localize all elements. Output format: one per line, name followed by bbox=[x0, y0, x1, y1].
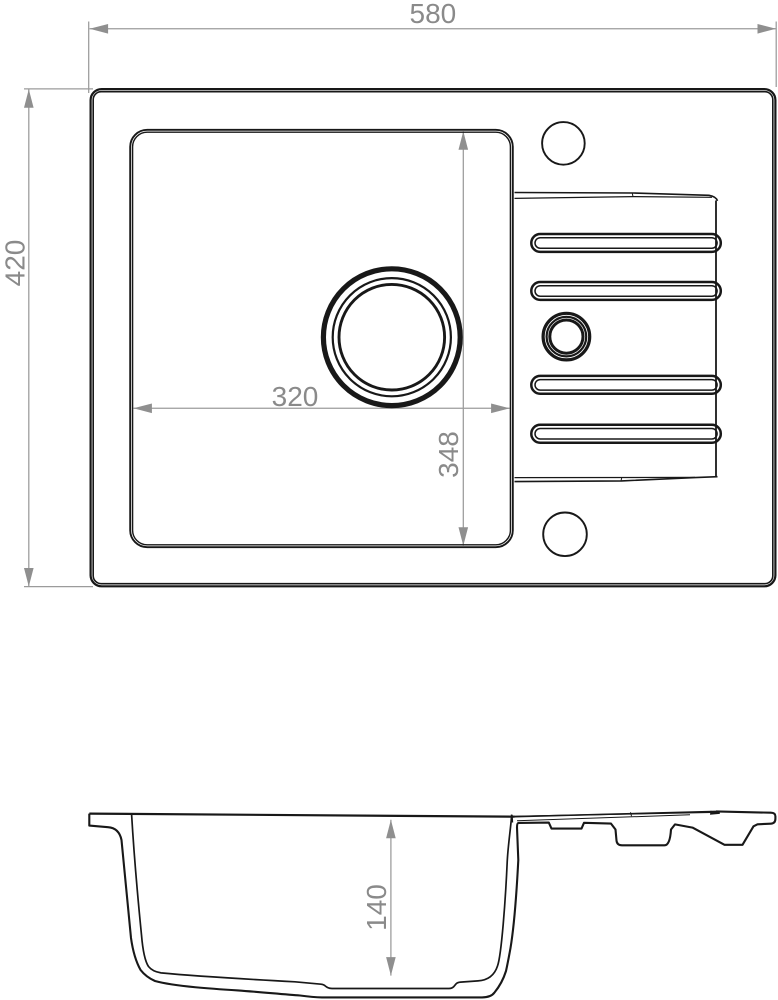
svg-text:420: 420 bbox=[0, 240, 30, 287]
svg-text:348: 348 bbox=[433, 431, 464, 478]
svg-text:580: 580 bbox=[410, 0, 457, 29]
svg-text:320: 320 bbox=[272, 381, 319, 412]
svg-text:140: 140 bbox=[361, 884, 392, 931]
